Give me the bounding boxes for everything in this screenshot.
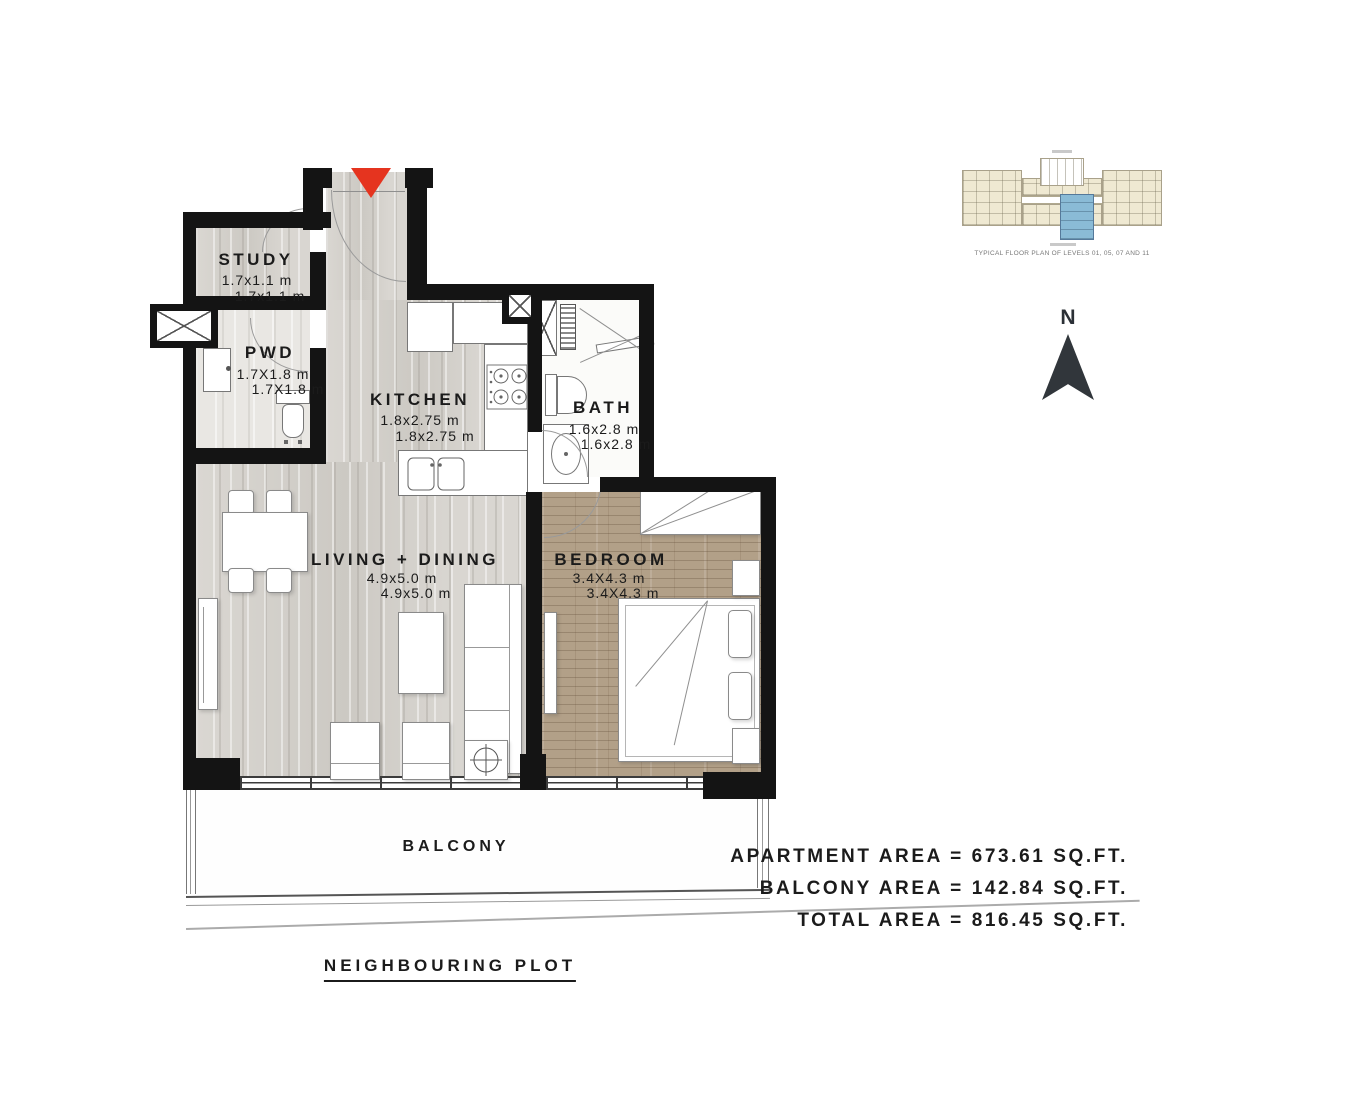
pwd-dim: 1.7X1.8 m: [252, 381, 325, 397]
bedroom-dim: 3.4X4.3 m: [573, 570, 646, 586]
wall: [183, 212, 196, 314]
shaft-x-icon: [157, 311, 211, 341]
study-dim: 1.7x1.1 m: [235, 288, 305, 304]
dining-table: [222, 512, 308, 572]
fridge: [407, 302, 453, 352]
bedroom-label: BEDROOM: [554, 550, 667, 570]
wall: [526, 492, 542, 754]
wall: [310, 348, 326, 448]
wall: [183, 758, 240, 790]
bath-dim: 1.6x2.8 m: [581, 436, 651, 452]
north-label: N: [1044, 306, 1092, 330]
pillow: [728, 610, 752, 658]
wall: [761, 477, 776, 799]
wall: [183, 456, 196, 768]
basin-drain: [564, 452, 568, 456]
key-plan-caption: TYPICAL FLOOR PLAN OF LEVELS 01, 05, 07 …: [962, 250, 1162, 257]
wall: [310, 252, 326, 310]
bedroom-dim: 3.4X4.3 m: [587, 585, 660, 601]
key-plan-tick: [1052, 150, 1072, 153]
toilet-foot: [298, 440, 302, 444]
pwd-label: PWD: [245, 343, 295, 363]
north-arrow-icon: [1042, 334, 1094, 400]
balcony-label: BALCONY: [402, 838, 509, 856]
key-plan-lobby: [1040, 158, 1084, 186]
living-label: LIVING + DINING: [311, 550, 499, 570]
plant-icon: [468, 742, 504, 778]
armchair: [330, 722, 380, 780]
wall: [183, 212, 331, 228]
wall: [407, 168, 427, 300]
wall: [520, 754, 546, 790]
key-plan: [960, 146, 1164, 250]
floor-plan-canvas: STUDY 1.7x1.1 m 1.7x1.1 m PWD 1.7X1.8 m …: [0, 0, 1360, 1110]
bedroom-tv-console: [544, 612, 557, 714]
study-dim: 1.7x1.1 m: [222, 272, 292, 288]
kitchen-label: KITCHEN: [370, 390, 470, 410]
wall: [639, 477, 776, 492]
pwd-toilet-bowl: [282, 404, 304, 438]
door-handle: [226, 366, 231, 371]
key-plan-highlighted-unit: [1060, 194, 1094, 240]
duct-x-icon: [509, 295, 531, 317]
bath-label: BATH: [573, 398, 633, 418]
key-plan-wing: [962, 170, 1022, 226]
nightstand: [732, 728, 760, 764]
key-plan-tick: [1050, 243, 1076, 246]
living-dim: 4.9x5.0 m: [367, 570, 437, 586]
armchair: [402, 722, 450, 780]
neighbouring-plot-label: NEIGHBOURING PLOT: [324, 956, 576, 982]
balcony-railing-outer: [186, 898, 770, 906]
wall: [639, 284, 654, 484]
sink-icon: [406, 455, 466, 493]
toilet-tank: [545, 374, 557, 416]
wall: [600, 477, 640, 492]
shower-door: [560, 304, 576, 350]
toilet-foot: [284, 440, 288, 444]
pwd-dim: 1.7X1.8 m: [237, 366, 310, 382]
apartment-area-text: APARTMENT AREA = 673.61 SQ.FT.: [730, 846, 1128, 868]
dining-chair: [228, 568, 254, 593]
wall: [183, 448, 326, 464]
dining-chair: [266, 568, 292, 593]
balcony-right-edge: [757, 788, 769, 888]
balcony-left-edge: [186, 790, 196, 894]
coffee-table: [398, 612, 444, 694]
study-label: STUDY: [218, 250, 293, 270]
wall: [183, 342, 196, 456]
bath-dim: 1.6x2.8 m: [569, 421, 639, 437]
living-dim: 4.9x5.0 m: [381, 585, 451, 601]
kitchen-dim: 1.8x2.75 m: [380, 412, 459, 428]
total-area-text: TOTAL AREA = 816.45 SQ.FT.: [797, 910, 1128, 932]
stove-icon: [486, 364, 528, 410]
kitchen-dim: 1.8x2.75 m: [395, 428, 474, 444]
nightstand: [732, 560, 760, 596]
balcony-area-text: BALCONY AREA = 142.84 SQ.FT.: [760, 878, 1128, 900]
key-plan-wing: [1102, 170, 1162, 226]
bedroom-sliding-door: [546, 776, 703, 790]
tv-console: [198, 598, 218, 710]
pillow: [728, 672, 752, 720]
wall: [703, 772, 776, 799]
